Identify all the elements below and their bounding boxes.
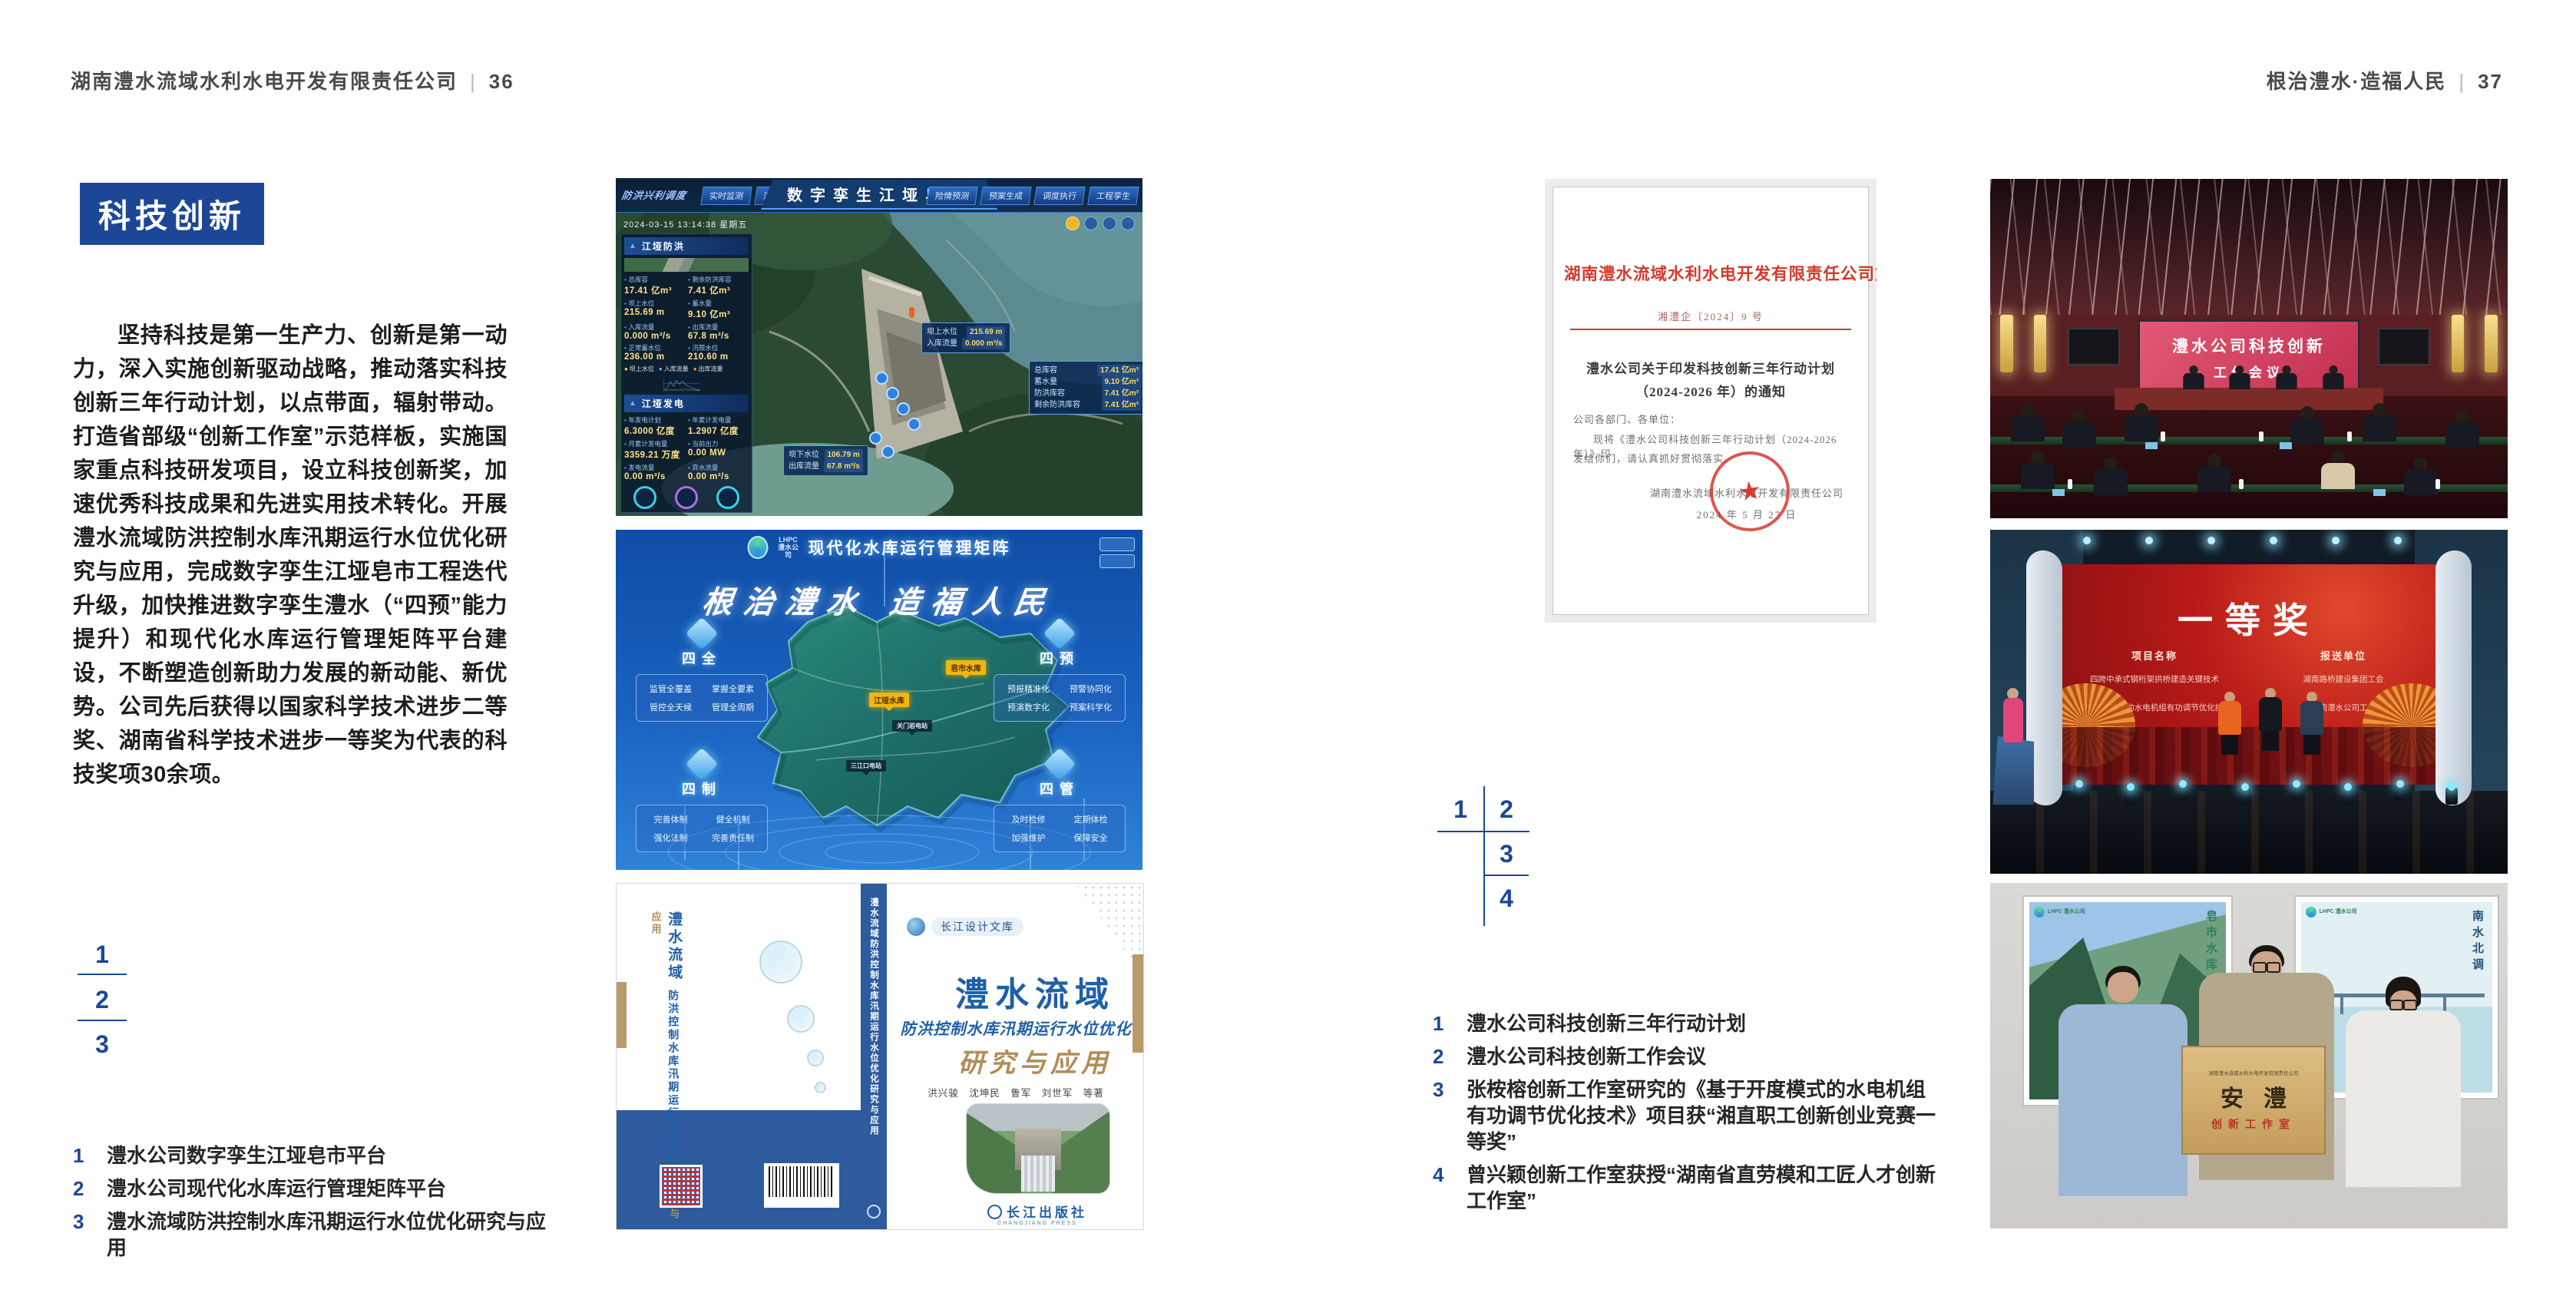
- glasses-icon: [2389, 1000, 2417, 1007]
- front-tan-block: [1133, 954, 1143, 1053]
- corner-title: 四全: [636, 648, 768, 668]
- award-led-screen: 一等奖 项目名称 报送单位 四跨中承式钢桁架拱桥建造关键技术 湖南路桥建设集团工…: [2060, 564, 2438, 785]
- caption-row: 1 澧水公司数字孪生江垭皂市平台: [73, 1142, 557, 1169]
- stat-value: 17.41 亿m³: [624, 284, 685, 296]
- figure-index-3: 3: [1493, 840, 1520, 868]
- stat: 当前出力0.00 MW: [688, 439, 749, 461]
- caption-number: 2: [1433, 1043, 1451, 1070]
- stat: 蓄水量9.10 亿m³: [688, 299, 749, 320]
- publisher-mark: 长江出版社 CHANGJIANG PRESS: [966, 1202, 1109, 1226]
- publisher-glyph-icon: [867, 1205, 881, 1218]
- wall-lamp: [2485, 315, 2497, 372]
- stat-label: 弃水流量: [688, 463, 749, 472]
- corner-item: 掌握全要素: [703, 683, 762, 695]
- audience-member: [2062, 410, 2096, 448]
- audience-member: [2011, 403, 2045, 441]
- worker-figure: [909, 307, 914, 318]
- stat-label: 汛限水位: [688, 343, 749, 352]
- panel-speaker: [2183, 365, 2204, 389]
- figure-index-divider: [78, 974, 127, 975]
- water-bottle: [2435, 479, 2440, 489]
- map-pin-icon: [881, 445, 894, 458]
- caption-row: 2 澧水公司科技创新工作会议: [1433, 1043, 1936, 1070]
- name-card: [2145, 442, 2158, 449]
- alert-icon: [1066, 217, 1080, 230]
- stat-value: 0.00 m³/s: [624, 472, 685, 481]
- power-panel-header: ▲江垭发电: [624, 395, 749, 412]
- panel-speaker: [2323, 365, 2343, 389]
- tab-realtime-monitoring: 实时监测: [700, 187, 752, 205]
- right-captions: 1 澧水公司科技创新三年行动计划 2 澧水公司科技创新工作会议 3 张桉榕创新工…: [1433, 1010, 1936, 1221]
- tab-risk-prediction: 险情预测: [926, 187, 977, 205]
- corner-item: 监管全覆盖: [641, 683, 700, 695]
- caption-text: 曾兴颖创新工作室获授“湖南省直劳模和工匠人才创新工作室”: [1467, 1162, 1936, 1214]
- figure-index-vline: [1483, 786, 1485, 926]
- logo-line1: LHPC: [779, 536, 798, 544]
- stat-value: 3359.21 万度: [624, 448, 685, 461]
- layers-icon: [1084, 217, 1098, 230]
- magazine-spread: 湖南澧水流域水利水电开发有限责任公司|36 根治澧水·造福人民|37 科技创新 …: [0, 0, 2576, 1306]
- matrix-corner-sizhi: 四制 完善体制 健全机制 强化法制 完善责任制: [636, 752, 768, 852]
- caption-text: 澧水公司科技创新工作会议: [1467, 1043, 1936, 1070]
- spine-title: 澧水流域防洪控制水库汛期运行水位优化研究与应用: [868, 898, 880, 1151]
- person-right: [2342, 977, 2465, 1187]
- locate-icon: [1103, 217, 1116, 230]
- name-card: [2280, 442, 2292, 449]
- stat-value: 7.41 亿m³: [688, 284, 749, 296]
- person-left: [2058, 966, 2188, 1196]
- meeting-ceiling: [1990, 179, 2508, 315]
- caption-number: 4: [1433, 1162, 1451, 1214]
- book-spine: 澧水流域防洪控制水库汛期运行水位优化研究与应用: [861, 884, 887, 1229]
- back-title-main: 澧水流域: [666, 911, 682, 982]
- upstream-callout: 坝上水位215.69 m 入库流量0.000 m³/s: [921, 322, 1010, 353]
- matrix-corner-siyu: 四预 预报精准化 预警协同化 预演数字化 预案科学化: [994, 622, 1126, 722]
- callout-label: 蓄水量: [1034, 376, 1057, 388]
- corner-panel: 完善体制 健全机制 强化法制 完善责任制: [636, 805, 768, 852]
- corner-item: 预案科学化: [1061, 701, 1120, 713]
- stat-value: 210.60 m: [688, 352, 749, 362]
- stat-label: 月累计发电量: [624, 439, 685, 448]
- stage-light: [2445, 788, 2458, 805]
- figure-index-divider: [78, 1020, 127, 1021]
- document-body-line2: 发给你们，请认真抓好贯彻落实。: [1573, 451, 1851, 465]
- panel-logo-icon: ▲: [629, 242, 638, 250]
- callout-value: 7.41 亿m³: [1102, 399, 1142, 411]
- map-pin-icon: [908, 418, 921, 431]
- stat-label: 年累计发电量: [688, 415, 749, 425]
- document-salutation: 公司各部门、各单位：: [1573, 412, 1681, 426]
- right-page-header: 根治澧水·造福人民|37: [2267, 66, 2503, 94]
- panel-logo-icon: ▲: [629, 399, 638, 408]
- audience-member: [2094, 457, 2128, 495]
- corner-item: 预演数字化: [999, 701, 1058, 713]
- lhpc-logo-icon: [748, 536, 769, 559]
- caption-number: 1: [73, 1142, 91, 1169]
- audience-member: [2445, 410, 2479, 448]
- maintenance-icon: [1043, 748, 1076, 780]
- panel-speaker: [2276, 365, 2297, 389]
- stage-light: [2290, 785, 2303, 802]
- stage-light: [2394, 785, 2406, 802]
- spotlight-icon: [2145, 537, 2153, 544]
- callout-value: 67.8 m³/s: [824, 461, 863, 472]
- tab-engineering-twin: 工程孪生: [1087, 187, 1139, 205]
- flood-panel-title: 江垭防洪: [642, 240, 685, 253]
- figure-index-1: 1: [75, 941, 129, 968]
- figure-matrix-platform: LHPC澧水公司 现代化水库运行管理矩阵 根治澧水 造福人民: [616, 530, 1143, 870]
- logo-line2: 澧水公司: [778, 544, 799, 559]
- water-bubble: [807, 1050, 824, 1066]
- generator-gauges: [624, 486, 749, 509]
- audience-member: [2290, 406, 2324, 445]
- corner-item: 预报精准化: [999, 683, 1058, 695]
- innovation-workshop-plaque: 湖南澧水流域水利水电开发有限责任公司 安澧 创新工作室: [2181, 1046, 2325, 1156]
- dam-thumbnail: [624, 258, 749, 272]
- wall-lamp: [2452, 315, 2464, 372]
- corner-title: 四制: [636, 779, 768, 798]
- hill-right: [1053, 1111, 1109, 1194]
- motto: 根治澧水·造福人民: [2267, 70, 2447, 93]
- stat-value: 67.8 m³/s: [688, 332, 749, 341]
- water-level-chart: [624, 376, 739, 392]
- stat: 弃水流量0.00 m³/s: [688, 463, 749, 481]
- face: [2108, 972, 2138, 1003]
- company-name: 湖南澧水流域水利水电开发有限责任公司: [71, 70, 458, 93]
- stat-label: 入库流量: [624, 322, 685, 332]
- corner-item: 预警协同化: [1061, 683, 1120, 695]
- stage-light: [2177, 785, 2189, 802]
- water-bottle: [2068, 479, 2072, 489]
- figure-index-4: 4: [1493, 884, 1520, 912]
- caption-row: 2 澧水公司现代化水库运行管理矩阵平台: [73, 1175, 557, 1202]
- corner-panel: 预报精准化 预警协同化 预演数字化 预案科学化: [994, 674, 1126, 722]
- poster-vertical-title: 南水北调: [2470, 910, 2486, 974]
- figure-book-cover: 澧水流域 防洪控制水库汛期运行水位优化 研究与应用 澧水流域防洪控制水库汛期运行…: [616, 883, 1144, 1230]
- corner-title: 四预: [994, 648, 1126, 668]
- stage-light: [2073, 785, 2085, 802]
- awardee-navy: [2300, 692, 2323, 755]
- stat: 汛限水位210.60 m: [688, 343, 749, 362]
- dashboard-side-panel: ▲江垭防洪 总库容17.41 亿m³ 剩余防洪库容7.41 亿m³ 坝上水位21…: [620, 233, 752, 513]
- caption-number: 3: [73, 1208, 91, 1261]
- water-bottle: [2347, 431, 2352, 441]
- flood-panel-header: ▲江垭防洪: [624, 237, 749, 255]
- wall-lamp: [2034, 315, 2046, 372]
- caption-number: 2: [73, 1175, 91, 1202]
- gauge-unit2: [675, 486, 698, 509]
- callout-value: 0.000 m³/s: [962, 338, 1005, 349]
- barcode: [764, 1163, 839, 1208]
- dam-photo: [966, 1103, 1110, 1194]
- caption-text: 澧水公司数字孪生江垭皂市平台: [107, 1142, 557, 1169]
- water-bubble: [815, 1082, 826, 1093]
- audience-member: [2404, 457, 2438, 495]
- plaque-calligraphy: 安澧: [2201, 1080, 2306, 1113]
- menu-chip: [1100, 554, 1135, 568]
- legend-item: 出库流量: [693, 365, 723, 373]
- corner-item: 加强维护: [999, 832, 1058, 844]
- lhpc-logo-text: LHPC 澧水公司: [2048, 909, 2085, 915]
- power-stats: 年发电计划6.3000 亿度 年累计发电量1.2907 亿度 月累计发电量335…: [624, 415, 749, 481]
- dashboard-mode-label: 防洪兴利调度: [620, 187, 687, 202]
- stage-light: [2342, 788, 2354, 805]
- host-figure: [2003, 688, 2023, 742]
- map-pin-icon: [875, 372, 888, 385]
- qr-code: [660, 1165, 703, 1208]
- wall-tv: [2068, 328, 2120, 365]
- host-podium: [1992, 736, 2034, 805]
- chart-legend: 坝上水位 入库流量 出库流量: [624, 365, 749, 373]
- corner-panel: 及时检修 定期体检 加强维护 保障安全: [994, 805, 1126, 852]
- publisher-name: 长江出版社: [1007, 1205, 1087, 1221]
- callout-label: 防洪库容: [1034, 388, 1065, 399]
- stat-label: 剩余防洪库容: [688, 275, 749, 284]
- corner-item: 及时检修: [999, 813, 1058, 825]
- figure-index-3: 3: [75, 1030, 129, 1058]
- white-tee-torso: [2346, 1010, 2461, 1187]
- caption-row: 4 曾兴颖创新工作室获授“湖南省直劳模和工匠人才创新工作室”: [1433, 1162, 1936, 1214]
- figure-index-2: 2: [1493, 795, 1520, 823]
- stat-label: 正常蓄水位: [624, 343, 685, 352]
- document-title-line1: 澧水公司关于印发科技创新三年行动计划: [1553, 358, 1868, 377]
- corner-item: 保障安全: [1061, 832, 1120, 844]
- tab-dispatch-execution: 调度执行: [1033, 187, 1085, 205]
- column-project-name: 项目名称: [2083, 648, 2227, 663]
- stat: 年累计发电量1.2907 亿度: [688, 415, 749, 437]
- document-paper: 湖南澧水流域水利水电开发有限责任公司文件 湘澧企〔2024〕9 号 澧水公司关于…: [1553, 187, 1869, 615]
- name-card: [2373, 489, 2386, 496]
- dam-spillway: [1021, 1156, 1056, 1191]
- stat: 月累计发电量3359.21 万度: [624, 439, 685, 461]
- hill-left: [967, 1113, 1021, 1194]
- callout-label: 剩余防洪库容: [1034, 399, 1080, 411]
- corner-item: 管控全天候: [641, 701, 700, 713]
- left-captions: 1 澧水公司数字孪生江垭皂市平台 2 澧水公司现代化水库运行管理矩阵平台 3 澧…: [73, 1142, 557, 1268]
- legend-item: 入库流量: [659, 365, 689, 373]
- stat-value: 0.000 m³/s: [624, 332, 685, 341]
- corner-item: 健全机制: [703, 813, 762, 825]
- stage-light: [2125, 788, 2137, 805]
- book-authors: 洪兴骏 沈坤民 鲁军 刘世军 等著: [894, 1085, 1137, 1099]
- caption-text: 澧水公司现代化水库运行管理矩阵平台: [107, 1175, 557, 1202]
- screen-title-line1: 澧水公司科技创新: [2172, 334, 2326, 357]
- audience-member: [2321, 451, 2355, 489]
- blue-polo-torso: [2058, 1004, 2187, 1196]
- document-red-header: 湖南澧水流域水利水电开发有限责任公司文件: [1564, 261, 1857, 285]
- section-title-badge: 科技创新: [80, 183, 264, 245]
- corner-item: 完善体制: [641, 813, 700, 825]
- caption-row: 1 澧水公司科技创新三年行动计划: [1433, 1010, 1936, 1037]
- figure-digital-twin-platform: 防洪兴利调度 实时监测 洪水预报 防洪预警 数字孪生江垭皂市 险情预测 预案生成…: [616, 178, 1143, 516]
- book-title-tail: 研究与应用: [939, 1042, 1131, 1080]
- plaque-workshop-line: 创新工作室: [2211, 1116, 2296, 1132]
- caption-text: 张桉榕创新工作室研究的《基于开度模式的水电机组有功调节优化技术》项目获“湘直职工…: [1467, 1076, 1936, 1155]
- downstream-callout: 坝下水位106.79 m 出库流量67.8 m³/s: [783, 445, 868, 476]
- caption-row: 3 张桉榕创新工作室研究的《基于开度模式的水电机组有功调节优化技术》项目获“湘直…: [1433, 1076, 1936, 1155]
- presenter-suit: [2259, 688, 2282, 751]
- header-divider: |: [2459, 70, 2465, 93]
- callout-label: 入库流量: [927, 338, 957, 349]
- matrix-slogan: 根治澧水 造福人民: [699, 577, 1059, 622]
- stat: 年发电计划6.3000 亿度: [624, 415, 685, 437]
- page-number-left: 36: [489, 70, 514, 93]
- spotlight-icon: [2207, 537, 2215, 544]
- stat: 入库流量0.000 m³/s: [624, 322, 685, 341]
- caption-text: 澧水公司科技创新三年行动计划: [1467, 1010, 1936, 1037]
- water-bottle: [2259, 431, 2264, 441]
- stat: 正常蓄水位236.00 m: [624, 343, 685, 362]
- power-panel-title: 江垭发电: [642, 397, 685, 410]
- user-icon: [1121, 217, 1135, 230]
- monitor-icon: [686, 617, 718, 650]
- map-pin-icon: [886, 387, 899, 400]
- page-number-right: 37: [2478, 70, 2503, 93]
- lhpc-logo-icon: [2034, 907, 2045, 918]
- callout-value: 215.69 m: [967, 326, 1005, 338]
- stat: 发电流量0.00 m³/s: [624, 463, 685, 481]
- column-submitting-unit: 报送单位: [2272, 648, 2416, 663]
- stat: 出库流量67.8 m³/s: [688, 322, 749, 341]
- stat-label: 坝上水位: [624, 299, 685, 308]
- stat-label: 总库容: [624, 275, 685, 284]
- audience-member: [2197, 454, 2231, 492]
- lhpc-logo-text: LHPC澧水公司: [776, 536, 801, 559]
- awardee-orange: [2218, 692, 2241, 755]
- corner-item: 管理全周期: [703, 701, 762, 713]
- stat-value: 1.2907 亿度: [688, 425, 749, 437]
- map-label-guanmenyan: 关门岩电站: [892, 720, 932, 732]
- callout-value: 7.41 亿m³: [1102, 388, 1142, 399]
- panel-speaker: [2230, 365, 2250, 389]
- gauge-unit1: [633, 486, 656, 509]
- lhpc-logo: LHPC 澧水公司: [2306, 907, 2357, 918]
- water-bubble: [759, 941, 802, 984]
- corner-title: 四管: [994, 779, 1126, 798]
- caption-number: 3: [1433, 1076, 1451, 1155]
- callout-value: 9.10 亿m³: [1102, 376, 1142, 388]
- dashboard-tabs-right: 险情预测 预案生成 调度执行 工程孪生: [928, 187, 1138, 205]
- audience-member: [2021, 451, 2055, 489]
- audience-member: [2363, 403, 2396, 441]
- map-pin-icon: [897, 402, 910, 415]
- skyline-silhouette: [2060, 727, 2438, 785]
- stat-value: 0.00 m³/s: [688, 472, 749, 481]
- gauge-unit3: [716, 486, 739, 509]
- matrix-title: 现代化水库运行管理矩阵: [809, 536, 1011, 559]
- water-bottle: [2239, 479, 2244, 489]
- plaque-org-line: 湖南澧水流域水利水电开发有限责任公司: [2208, 1069, 2298, 1076]
- tab-plan-generation: 预案生成: [980, 187, 1031, 205]
- figure-official-document: 湖南澧水流域水利水电开发有限责任公司文件 湘澧企〔2024〕9 号 澧水公司关于…: [1545, 179, 1877, 623]
- stat-label: 年发电计划: [624, 415, 685, 425]
- caption-row: 3 澧水流域防洪控制水库汛期运行水位优化研究与应用: [73, 1208, 557, 1261]
- glasses-icon: [2253, 962, 2280, 970]
- map-pin-icon: [869, 431, 882, 445]
- seal-star-icon: ★: [1736, 474, 1764, 508]
- reservoir-callout: 总库容17.41 亿m³ 蓄水量9.10 亿m³ 防洪库容7.41 亿m³ 剩余…: [1029, 361, 1143, 415]
- lhpc-logo-icon: [2306, 907, 2316, 918]
- map-label-sanjiangkou: 三江口电站: [846, 760, 886, 772]
- callout-label: 总库容: [1034, 365, 1057, 376]
- figure-index-2: 2: [75, 986, 129, 1013]
- lhpc-logo-text: LHPC 澧水公司: [2320, 909, 2357, 915]
- water-bubble: [787, 1005, 815, 1033]
- series-name: 长江设计文库: [931, 918, 1023, 936]
- document-number: 湘澧企〔2024〕9 号: [1553, 309, 1868, 323]
- spotlight-icon: [2270, 537, 2277, 544]
- corner-panel: 监管全覆盖 掌握全要素 管控全天候 管理全周期: [636, 674, 768, 722]
- stat-label: 发电流量: [624, 463, 685, 472]
- series-badge: 长江设计文库: [907, 918, 1023, 936]
- water-bottle: [2161, 431, 2165, 441]
- book-title-sub: 防洪控制水库汛期运行水位优化: [894, 1016, 1137, 1039]
- stat: 剩余防洪库容7.41 亿m³: [688, 275, 749, 296]
- stat-label: 当前出力: [688, 439, 749, 448]
- stat-label: 蓄水量: [688, 299, 749, 308]
- corner-item: 定期体检: [1061, 813, 1120, 825]
- body-paragraph: 坚持科技是第一生产力、创新是第一动力，深入实施创新驱动战略，推动落实科技创新三年…: [73, 319, 508, 792]
- map-label-zaoshi: 皂市水库: [946, 660, 986, 675]
- caption-text: 澧水流域防洪控制水库汛期运行水位优化研究与应用: [107, 1208, 557, 1261]
- spotlight-icon: [2332, 537, 2340, 544]
- stat-label: 出库流量: [688, 322, 749, 332]
- back-title-sub: 防洪控制水库汛期运行水位优化: [667, 990, 680, 1172]
- series-logo-icon: [907, 918, 925, 936]
- callout-label: 坝上水位: [927, 326, 957, 338]
- dashboard-toolbar-icons: [1066, 217, 1135, 230]
- wall-tv: [2378, 328, 2430, 365]
- forecast-icon: [1043, 617, 1076, 650]
- photo-workshop-plaque: LHPC 澧水公司 皂市水库 LHPC 澧水公司 南水北调: [1990, 883, 2508, 1228]
- map-label-jiangya: 江垭水库: [869, 693, 909, 707]
- name-card: [2052, 489, 2065, 496]
- document-red-rule: [1570, 329, 1851, 330]
- publisher-logo-icon: [987, 1205, 1002, 1219]
- stat-value: 215.69 m: [624, 308, 685, 317]
- stat-value: 9.10 亿m³: [688, 308, 749, 320]
- photo-award-ceremony: 一等奖 项目名称 报送单位 四跨中承式钢桁架拱桥建造关键技术 湖南路桥建设集团工…: [1990, 530, 2508, 874]
- stat-value: 236.00 m: [624, 352, 685, 362]
- matrix-corner-siguan: 四管 及时检修 定期体检 加强维护 保障安全: [994, 752, 1126, 852]
- figure-index-1: 1: [1447, 795, 1474, 823]
- callout-label: 坝下水位: [789, 449, 819, 461]
- stat: 总库容17.41 亿m³: [624, 275, 685, 296]
- stat-value: 6.3000 亿度: [624, 425, 685, 437]
- matrix-corner-siquan: 四全 监管全覆盖 掌握全要素 管控全天候 管理全周期: [636, 622, 768, 722]
- flood-stats: 总库容17.41 亿m³ 剩余防洪库容7.41 亿m³ 坝上水位215.69 m…: [624, 275, 749, 362]
- book-title-main: 澧水流域: [939, 967, 1131, 1016]
- stage-light: [2239, 788, 2251, 805]
- figure-index-hline: [1437, 831, 1529, 832]
- stat: 坝上水位215.69 m: [624, 299, 685, 320]
- callout-value: 106.79 m: [825, 449, 863, 461]
- institution-icon: [686, 748, 718, 780]
- spotlight-icon: [2083, 537, 2091, 544]
- matrix-header: LHPC澧水公司 现代化水库运行管理矩阵: [748, 536, 1011, 559]
- photo-innovation-meeting: 澧水公司科技创新 工作会议: [1990, 179, 2508, 518]
- spotlight-icon: [2394, 537, 2402, 544]
- first-prize-title: 一等奖: [2060, 593, 2438, 643]
- wall-lamp: [2000, 315, 2012, 372]
- legend-item: 坝上水位: [624, 365, 654, 373]
- header-divider: |: [470, 70, 477, 93]
- dashboard-datetime: 2024-03-15 13:14:38 星期五: [623, 218, 747, 230]
- corner-item: 强化法制: [641, 832, 700, 844]
- callout-value: 17.41 亿m³: [1097, 365, 1142, 376]
- audience-member: [2125, 403, 2158, 441]
- document-title-line2: （2024-2026 年）的通知: [1553, 381, 1868, 400]
